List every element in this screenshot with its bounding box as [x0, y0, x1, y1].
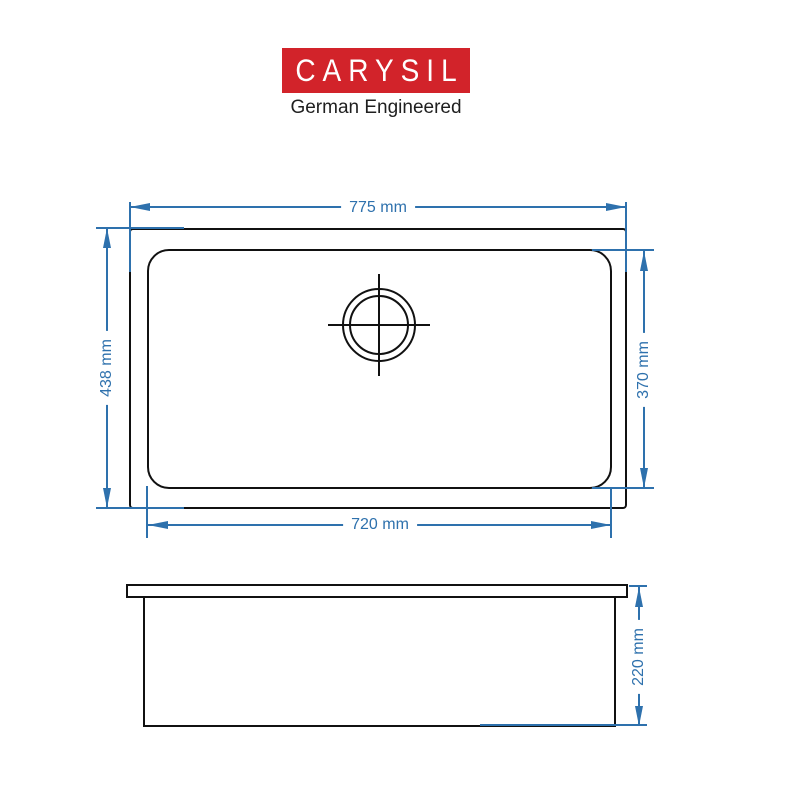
arrowhead-icon [130, 203, 150, 211]
dimension-label-bowl-depth: 370 mm [634, 333, 654, 407]
arrowhead-icon [148, 521, 168, 529]
arrowhead-icon [103, 228, 111, 248]
dimension-label-bowl-height: 220 mm [629, 620, 649, 694]
dimension-label-bowl-width: 720 mm [343, 515, 417, 535]
extension-line [146, 486, 148, 538]
arrowhead-icon [606, 203, 626, 211]
extension-line [610, 487, 612, 538]
arrowhead-icon [640, 251, 648, 271]
brand-tagline: German Engineered [290, 97, 461, 119]
sink-dimension-diagram: CARYSIL German Engineered 775 mm 438 mm … [0, 0, 800, 800]
dimension-label-overall-width: 775 mm [341, 198, 415, 218]
extension-line [129, 202, 131, 272]
dimension-label-overall-depth: 438 mm [97, 331, 117, 405]
brand-logo: CARYSIL [282, 48, 470, 93]
sink-body-side-view [143, 596, 616, 727]
arrowhead-icon [103, 488, 111, 508]
arrowhead-icon [635, 587, 643, 607]
arrowhead-icon [591, 521, 611, 529]
arrowhead-icon [635, 706, 643, 726]
extension-line [480, 724, 647, 726]
brand-logo-text: CARYSIL [288, 53, 463, 89]
drain-crosshair-horizontal [328, 324, 430, 326]
extension-line [625, 202, 627, 272]
arrowhead-icon [640, 468, 648, 488]
